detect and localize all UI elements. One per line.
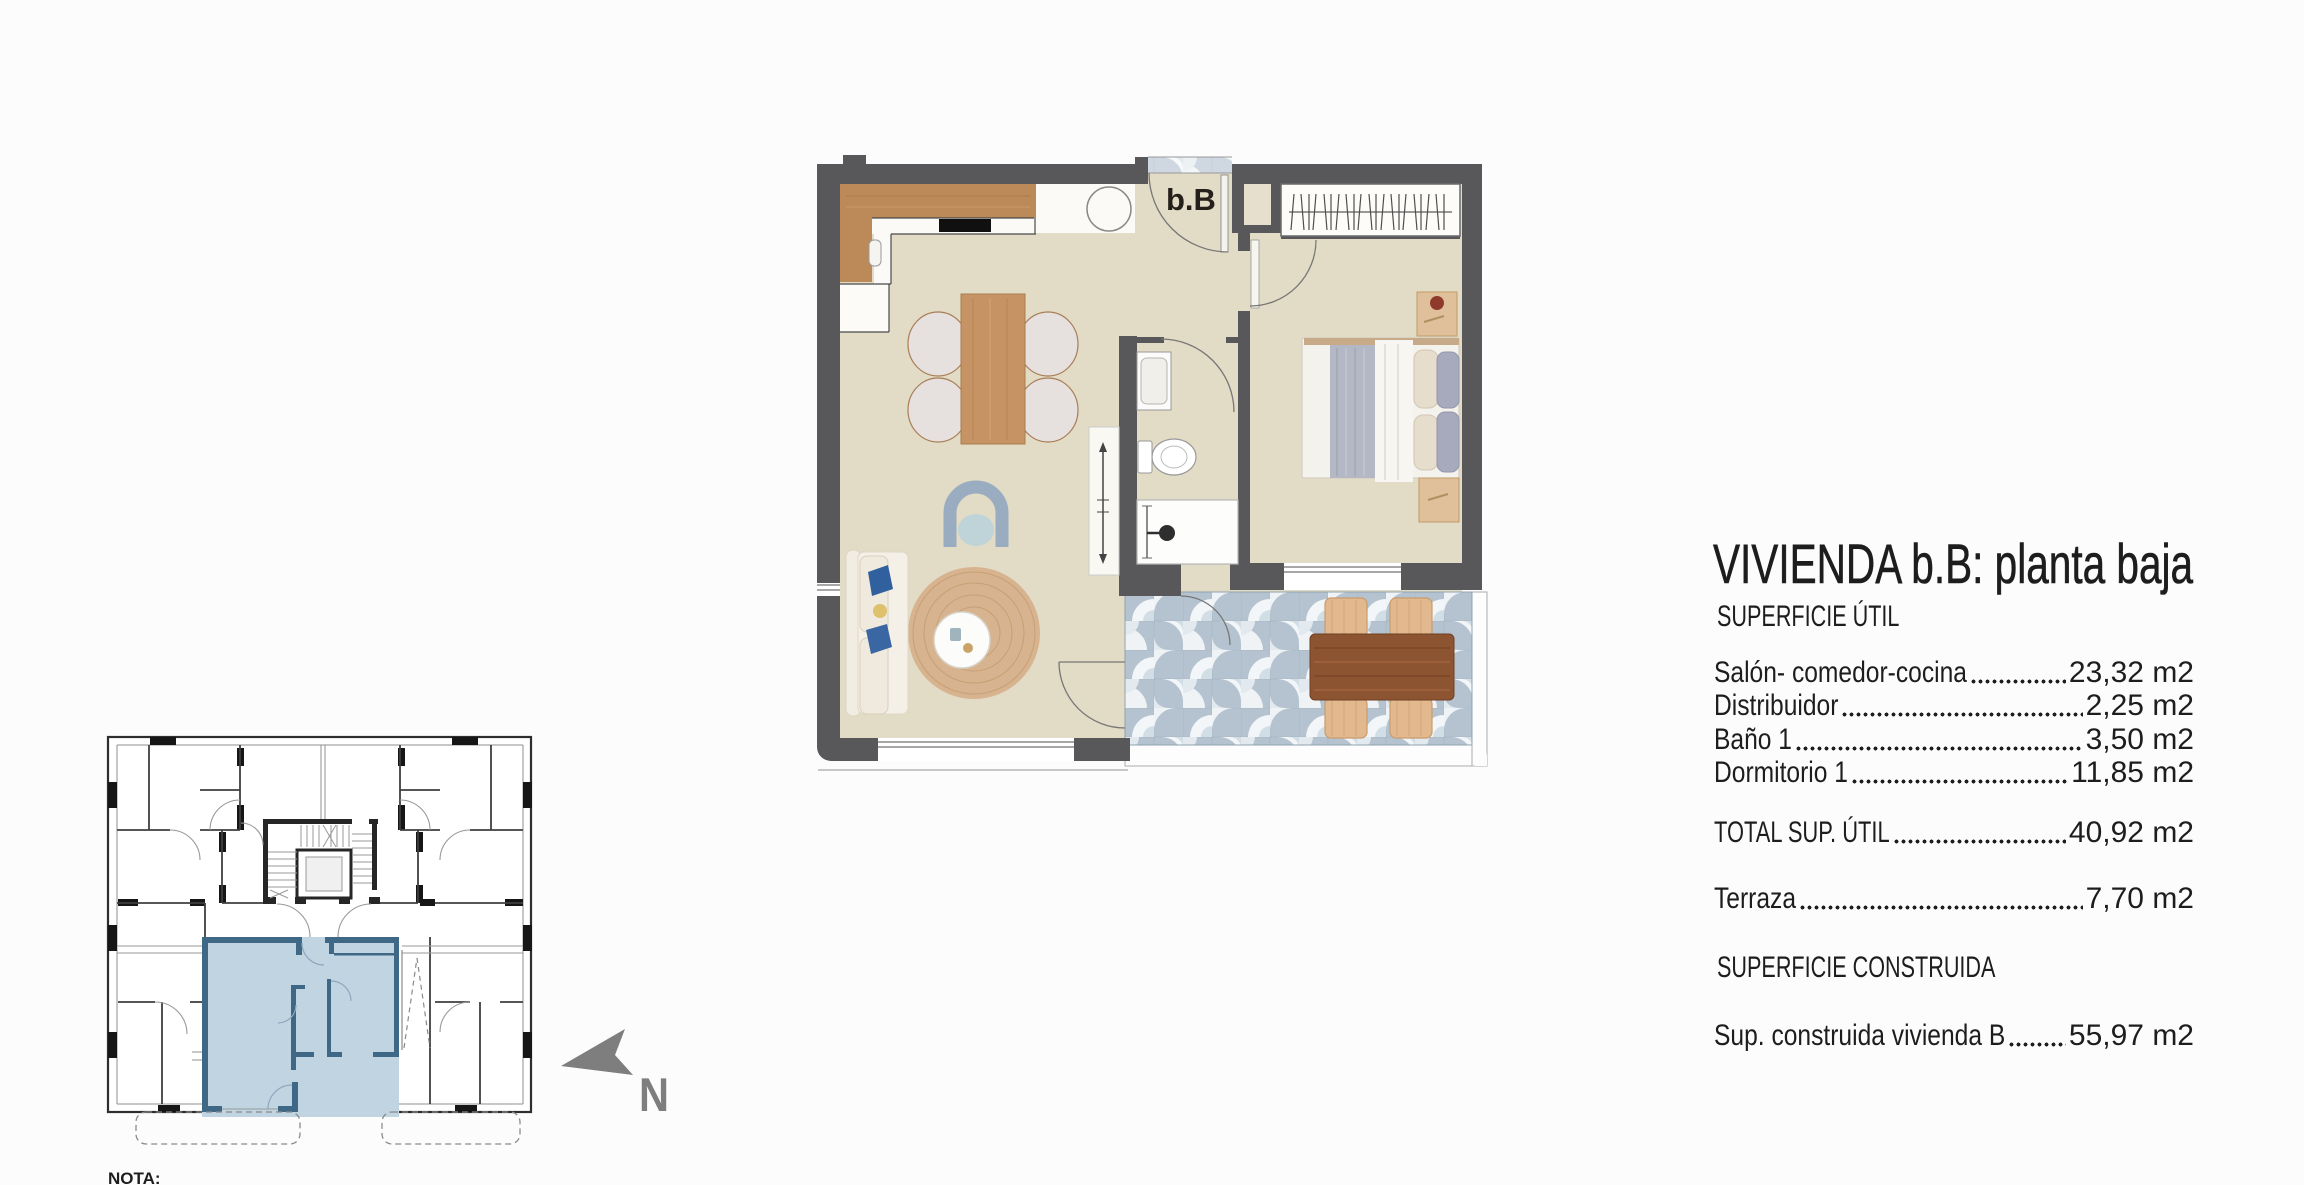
svg-text:N: N xyxy=(639,1068,669,1121)
